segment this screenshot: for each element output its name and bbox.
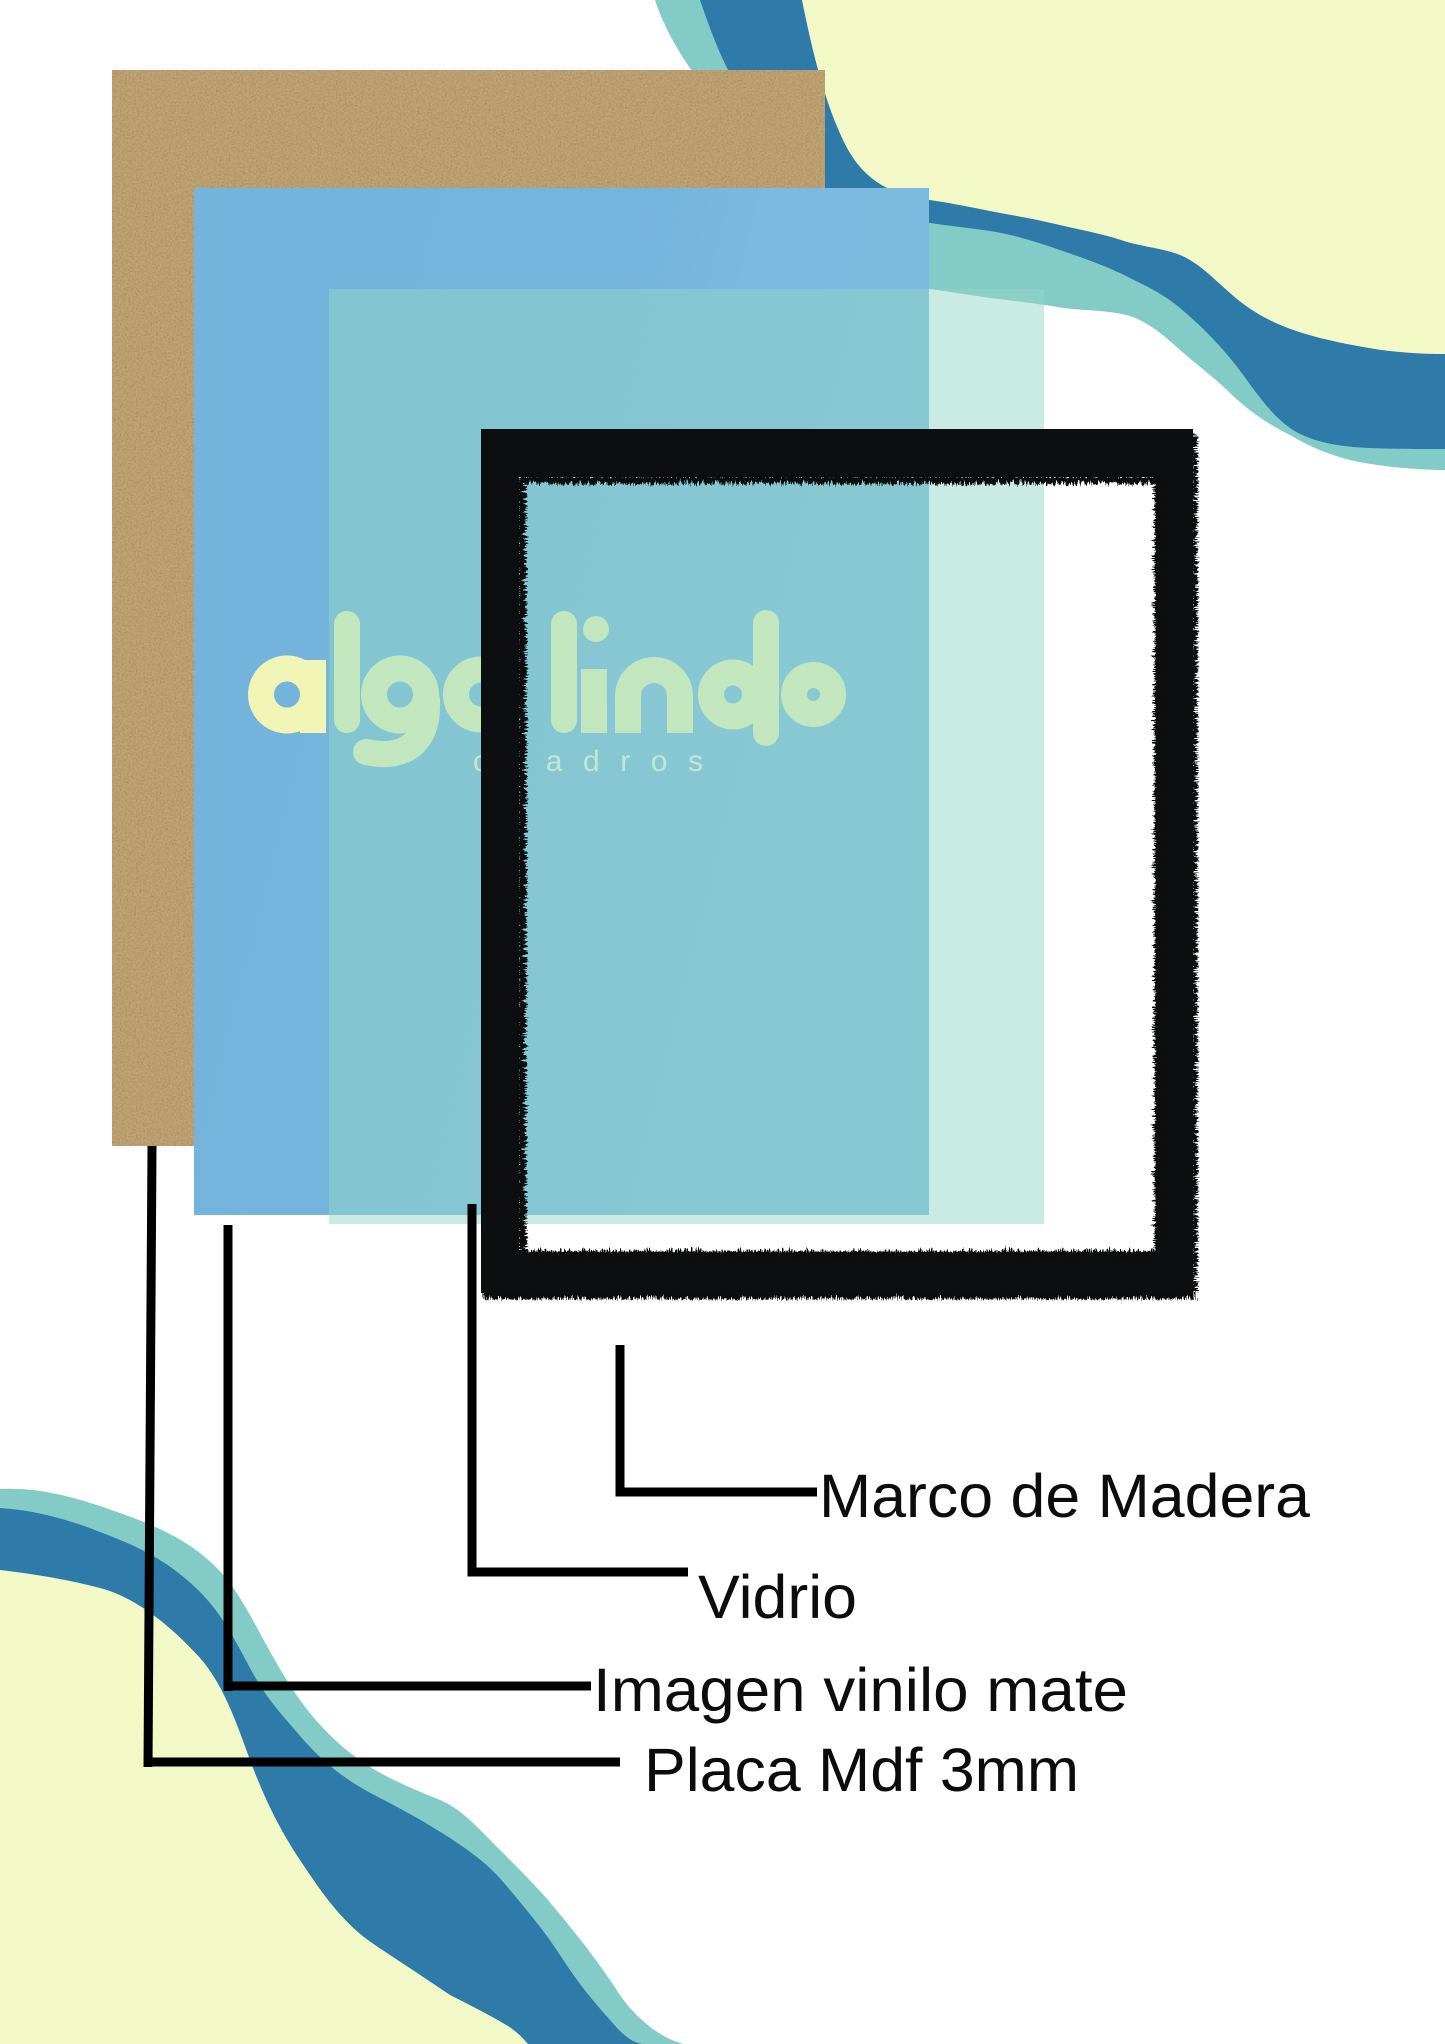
svg-text:Placa Mdf 3mm: Placa Mdf 3mm bbox=[644, 1736, 1079, 1804]
svg-text:Imagen vinilo mate: Imagen vinilo mate bbox=[593, 1656, 1128, 1724]
svg-text:Vidrio: Vidrio bbox=[698, 1563, 857, 1631]
svg-text:Marco de Madera: Marco de Madera bbox=[819, 1462, 1310, 1530]
